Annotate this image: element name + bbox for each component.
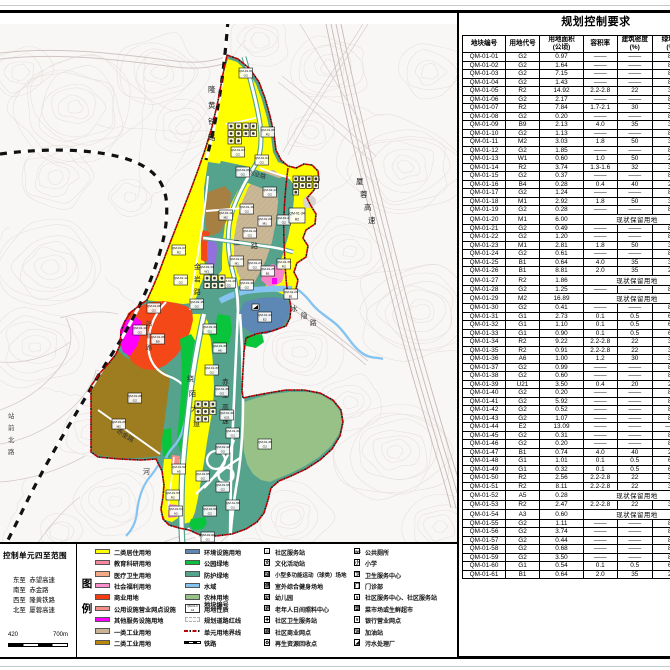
svg-text:R2: R2 xyxy=(282,264,286,268)
svg-text:陌: 陌 xyxy=(189,389,196,398)
svg-text:G1: G1 xyxy=(208,329,212,333)
svg-text:G2: G2 xyxy=(221,449,225,453)
svg-text:A6: A6 xyxy=(218,348,222,352)
svg-text:站: 站 xyxy=(146,320,152,328)
svg-text:绕: 绕 xyxy=(187,374,194,383)
svg-text:QM-01-60: QM-01-60 xyxy=(201,533,215,537)
svg-text:QM-01-41: QM-01-41 xyxy=(240,281,254,285)
svg-text:M2: M2 xyxy=(224,215,229,219)
svg-text:G2: G2 xyxy=(210,370,214,374)
svg-text:U21: U21 xyxy=(224,415,230,419)
svg-text:G1: G1 xyxy=(206,537,210,541)
svg-text:厦: 厦 xyxy=(356,177,364,186)
svg-text:QM-01-59: QM-01-59 xyxy=(203,507,217,511)
svg-text:蓉: 蓉 xyxy=(360,189,368,199)
svg-text:M2: M2 xyxy=(117,424,122,428)
svg-text:QM-01-46: QM-01-46 xyxy=(258,440,272,444)
svg-text:水: 水 xyxy=(291,304,298,313)
svg-text:G2: G2 xyxy=(260,160,264,164)
svg-text:G2: G2 xyxy=(138,330,142,334)
svg-text:B9: B9 xyxy=(156,339,160,343)
svg-text:QM-01-03: QM-01-03 xyxy=(231,148,245,152)
svg-text:QM-01-58: QM-01-58 xyxy=(226,501,240,505)
svg-text:路: 路 xyxy=(8,447,15,456)
svg-text:G2: G2 xyxy=(195,304,199,308)
svg-text:G2: G2 xyxy=(152,308,156,312)
svg-text:G2: G2 xyxy=(201,476,205,480)
svg-text:二: 二 xyxy=(233,240,240,247)
svg-text:M1: M1 xyxy=(263,221,268,225)
svg-text:QM-01-25: QM-01-25 xyxy=(261,267,275,271)
svg-text:QM-01-53: QM-01-53 xyxy=(166,491,180,495)
svg-text:QM-01-31: QM-01-31 xyxy=(203,325,217,329)
svg-text:QM-01-05: QM-01-05 xyxy=(261,128,275,132)
svg-text:G2: G2 xyxy=(227,283,231,287)
svg-text:路: 路 xyxy=(310,318,317,327)
svg-text:隆: 隆 xyxy=(208,84,216,94)
svg-text:W1: W1 xyxy=(204,269,209,273)
svg-text:QM-01-54: QM-01-54 xyxy=(169,507,183,511)
svg-text:岩: 岩 xyxy=(194,275,201,284)
svg-text:河: 河 xyxy=(143,468,150,476)
svg-text:G2: G2 xyxy=(221,487,225,491)
svg-text:QM-01-07: QM-01-07 xyxy=(172,246,186,250)
svg-text:黄: 黄 xyxy=(208,100,216,110)
svg-text:QM-01-19: QM-01-19 xyxy=(240,205,254,209)
svg-text:G2: G2 xyxy=(236,152,240,156)
svg-text:QM-01-37: QM-01-37 xyxy=(205,366,219,370)
svg-text:QM-01-24: QM-01-24 xyxy=(248,261,262,265)
svg-text:G2: G2 xyxy=(282,220,286,224)
svg-text:G2: G2 xyxy=(231,505,235,509)
svg-text:QM-01-01: QM-01-01 xyxy=(239,69,253,73)
svg-text:B1: B1 xyxy=(266,271,270,275)
svg-text:A5: A5 xyxy=(177,469,181,473)
svg-text:QM-01-17: QM-01-17 xyxy=(263,188,277,192)
svg-text:速: 速 xyxy=(368,216,376,225)
svg-text:QM-01-56: QM-01-56 xyxy=(216,483,230,487)
svg-text:QM-01-20: QM-01-20 xyxy=(258,217,272,221)
svg-text:QM-01-08: QM-01-08 xyxy=(147,304,161,308)
svg-text:QM-01-22: QM-01-22 xyxy=(243,229,257,233)
svg-text:QM-01-42: QM-01-42 xyxy=(216,445,230,449)
svg-text:G2: G2 xyxy=(231,433,235,437)
svg-text:QM-01-35: QM-01-35 xyxy=(277,260,291,264)
svg-text:R2: R2 xyxy=(295,218,299,222)
svg-text:G2: G2 xyxy=(179,280,183,284)
svg-text:QM-01-06: QM-01-06 xyxy=(236,168,250,172)
svg-text:QM-01-15: QM-01-15 xyxy=(190,300,204,304)
svg-text:G2: G2 xyxy=(248,233,252,237)
svg-text:G2: G2 xyxy=(253,265,257,269)
svg-text:QM-01-12: QM-01-12 xyxy=(174,276,188,280)
svg-text:QM-01-36: QM-01-36 xyxy=(213,344,227,348)
svg-text:R2: R2 xyxy=(266,132,270,136)
svg-text:铁: 铁 xyxy=(208,116,216,126)
svg-text:G2: G2 xyxy=(268,192,272,196)
svg-text:G2: G2 xyxy=(133,398,137,402)
svg-text:QM-01-09: QM-01-09 xyxy=(151,335,165,339)
svg-text:QM-01-04: QM-01-04 xyxy=(255,156,269,160)
svg-text:QM-01-39: QM-01-39 xyxy=(220,411,234,415)
svg-text:站: 站 xyxy=(8,411,15,420)
svg-text:G2: G2 xyxy=(208,511,212,515)
svg-text:B1: B1 xyxy=(289,294,293,298)
svg-text:QM-01-28: QM-01-28 xyxy=(128,394,142,398)
svg-text:高: 高 xyxy=(364,202,372,212)
svg-text:G2: G2 xyxy=(244,73,248,77)
svg-text:M1: M1 xyxy=(235,261,240,265)
svg-text:G2: G2 xyxy=(245,285,249,289)
svg-text:G2: G2 xyxy=(263,444,267,448)
svg-text:E2: E2 xyxy=(263,317,267,321)
svg-text:北: 北 xyxy=(8,436,15,444)
svg-text:QM-01-41: QM-01-41 xyxy=(226,429,240,433)
svg-text:QM-01-26: QM-01-26 xyxy=(284,290,298,294)
svg-text:QM-01-23: QM-01-23 xyxy=(230,257,244,261)
svg-text:R2: R2 xyxy=(177,250,181,254)
svg-text:路: 路 xyxy=(194,287,201,296)
svg-text:路: 路 xyxy=(208,132,216,142)
svg-text:前: 前 xyxy=(8,423,15,432)
svg-text:QM-01-34: QM-01-34 xyxy=(289,212,304,216)
svg-text:QM-01-52: QM-01-52 xyxy=(172,465,186,469)
svg-text:路: 路 xyxy=(251,241,258,250)
svg-text:G2: G2 xyxy=(220,391,224,395)
svg-text:QM-01-38: QM-01-38 xyxy=(215,387,229,391)
svg-text:QM-01-13: QM-01-13 xyxy=(200,265,214,269)
svg-text:R2: R2 xyxy=(171,495,175,499)
svg-text:隐: 隐 xyxy=(301,311,308,320)
svg-text:A3: A3 xyxy=(174,511,178,515)
svg-text:QM-01-55: QM-01-55 xyxy=(196,472,210,476)
svg-text:QM-01-44: QM-01-44 xyxy=(258,313,272,317)
svg-text:QM-01-29: QM-01-29 xyxy=(112,420,126,424)
svg-text:路: 路 xyxy=(146,344,152,352)
svg-text:G2: G2 xyxy=(241,172,245,176)
svg-text:G2: G2 xyxy=(245,209,249,213)
svg-text:QM-01-10: QM-01-10 xyxy=(133,326,147,330)
svg-text:QM-01-11: QM-01-11 xyxy=(219,211,233,215)
svg-text:赤: 赤 xyxy=(222,378,229,386)
